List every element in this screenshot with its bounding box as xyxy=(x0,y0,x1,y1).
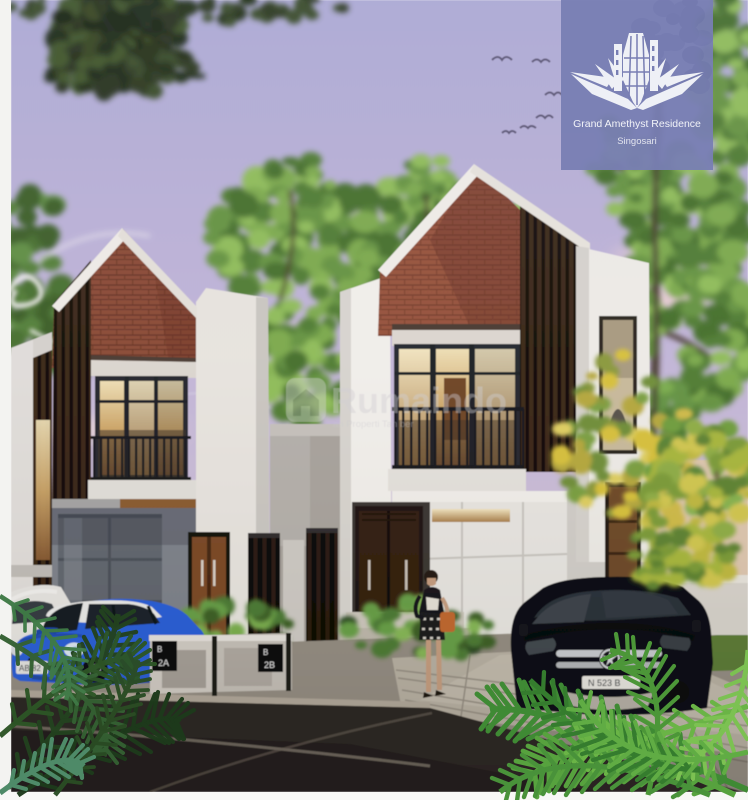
svg-text:Singosari: Singosari xyxy=(617,136,657,147)
svg-text:Grand Amethyst Residence: Grand Amethyst Residence xyxy=(573,118,701,130)
